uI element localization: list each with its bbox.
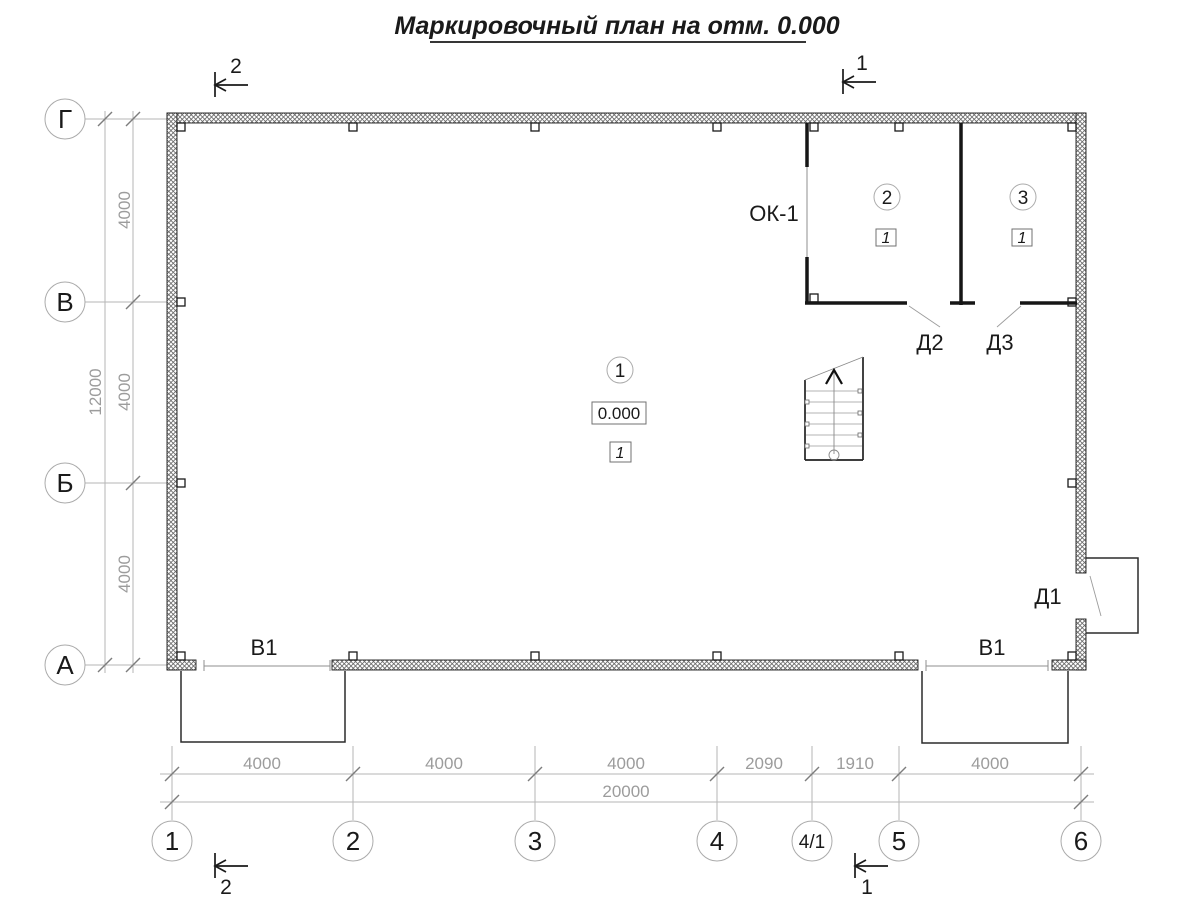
axis-label-1: 1 <box>165 826 179 856</box>
door-d3-leader <box>997 306 1021 327</box>
gate-label-v1-left: В1 <box>251 635 278 660</box>
axis-label-2: 2 <box>346 826 360 856</box>
section-mark-1-top: 1 <box>843 52 876 94</box>
room1-floor-type: 1 <box>616 445 625 462</box>
section-num-1-bottom: 1 <box>861 876 873 899</box>
dim-left-seg3: 4000 <box>115 555 134 593</box>
room2-floor-type: 1 <box>882 230 891 247</box>
axis-label-3: 3 <box>528 826 542 856</box>
room3-annotation: 3 1 <box>1010 184 1036 247</box>
interior-partitions <box>805 123 1077 305</box>
window-label-ok1: ОК-1 <box>749 201 799 226</box>
wall-right-upper <box>1076 113 1086 573</box>
door-d2-leader <box>909 306 940 327</box>
dim-bot-total: 20000 <box>602 782 649 801</box>
axis-label-v: В <box>56 287 73 317</box>
room2-annotation: 2 1 <box>874 184 900 247</box>
section-mark-2-bottom: 2 <box>215 853 248 899</box>
room3-floor-type: 1 <box>1018 230 1027 247</box>
column-markers <box>177 123 1076 660</box>
opening-labels: ОК-1 Д2 Д3 Д1 В1 В1 <box>251 201 1101 660</box>
section-num-1-top: 1 <box>856 52 868 75</box>
section-num-2-bottom: 2 <box>220 876 232 899</box>
drawing-title: Маркировочный план на отм. 0.000 <box>394 12 839 42</box>
room1-annotation: 1 0.000 1 <box>592 357 646 462</box>
dim-bot-seg3: 4000 <box>607 754 645 773</box>
door-label-d2: Д2 <box>916 330 943 355</box>
ramp-left <box>181 671 345 742</box>
ramp-right <box>922 671 1068 743</box>
dim-left-seg1: 4000 <box>115 191 134 229</box>
dim-bot-seg6: 4000 <box>971 754 1009 773</box>
dim-left-total: 12000 <box>86 368 105 415</box>
door-label-d3: Д3 <box>986 330 1013 355</box>
axis-label-a: А <box>56 650 74 680</box>
room1-number: 1 <box>615 361 626 382</box>
exterior-walls <box>167 113 1086 670</box>
door-label-d1: Д1 <box>1034 584 1061 609</box>
wall-left <box>167 113 177 670</box>
section-num-2-top: 2 <box>230 55 242 78</box>
dim-bot-seg4: 2090 <box>745 754 783 773</box>
room1-elevation: 0.000 <box>598 404 641 423</box>
wall-bottom-left-stub <box>167 660 196 670</box>
room3-number: 3 <box>1018 188 1029 209</box>
axis-label-5: 5 <box>892 826 906 856</box>
axis-label-4: 4 <box>710 826 724 856</box>
staircase <box>805 357 863 460</box>
section-mark-1-bottom: 1 <box>855 853 888 899</box>
dim-left-seg2: 4000 <box>115 373 134 411</box>
left-axis-bubbles: Г В Б А <box>45 99 85 685</box>
axis-label-g: Г <box>58 104 72 134</box>
bottom-dimensions: 4000 4000 4000 2090 1910 4000 20000 <box>160 746 1094 820</box>
axis-label-4-1: 4/1 <box>799 832 825 853</box>
wall-bottom-middle <box>332 660 918 670</box>
page-title: Маркировочный план на отм. 0.000 <box>394 12 839 40</box>
floor-plan-canvas: Маркировочный план на отм. 0.000 4000 40… <box>0 0 1200 900</box>
gate-label-v1-right: В1 <box>979 635 1006 660</box>
door-d1-leader <box>1090 576 1101 616</box>
left-dimensions: 4000 4000 4000 12000 <box>85 111 167 673</box>
axis-label-6: 6 <box>1074 826 1088 856</box>
dim-bot-seg1: 4000 <box>243 754 281 773</box>
porch-d1 <box>1086 558 1138 633</box>
room2-number: 2 <box>882 188 893 209</box>
section-mark-2-top: 2 <box>215 55 248 97</box>
bottom-axis-bubbles: 1 2 3 4 4/1 5 6 <box>152 821 1101 861</box>
wall-top <box>167 113 1086 123</box>
dim-bot-seg5: 1910 <box>836 754 874 773</box>
dim-bot-seg2: 4000 <box>425 754 463 773</box>
wall-bottom-right-stub <box>1052 660 1086 670</box>
axis-label-b: Б <box>56 468 73 498</box>
floor-plan-page: Маркировочный план на отм. 0.000 4000 40… <box>0 0 1200 900</box>
